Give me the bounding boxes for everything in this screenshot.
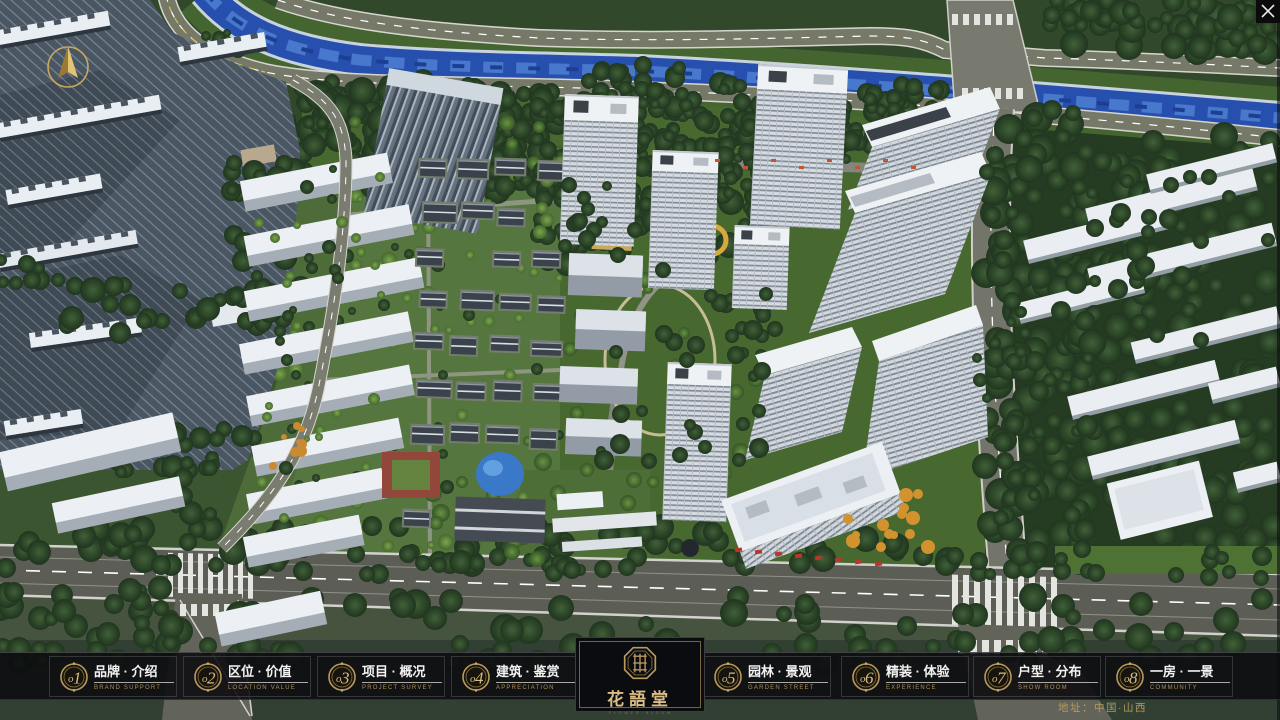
svg-text:3: 3 xyxy=(340,669,350,688)
svg-text:2: 2 xyxy=(207,669,216,688)
svg-text:4: 4 xyxy=(475,669,484,688)
svg-text:8: 8 xyxy=(1129,669,1138,688)
svg-text:5: 5 xyxy=(727,669,736,688)
svg-text:6: 6 xyxy=(865,669,874,688)
svg-text:1: 1 xyxy=(73,669,82,688)
